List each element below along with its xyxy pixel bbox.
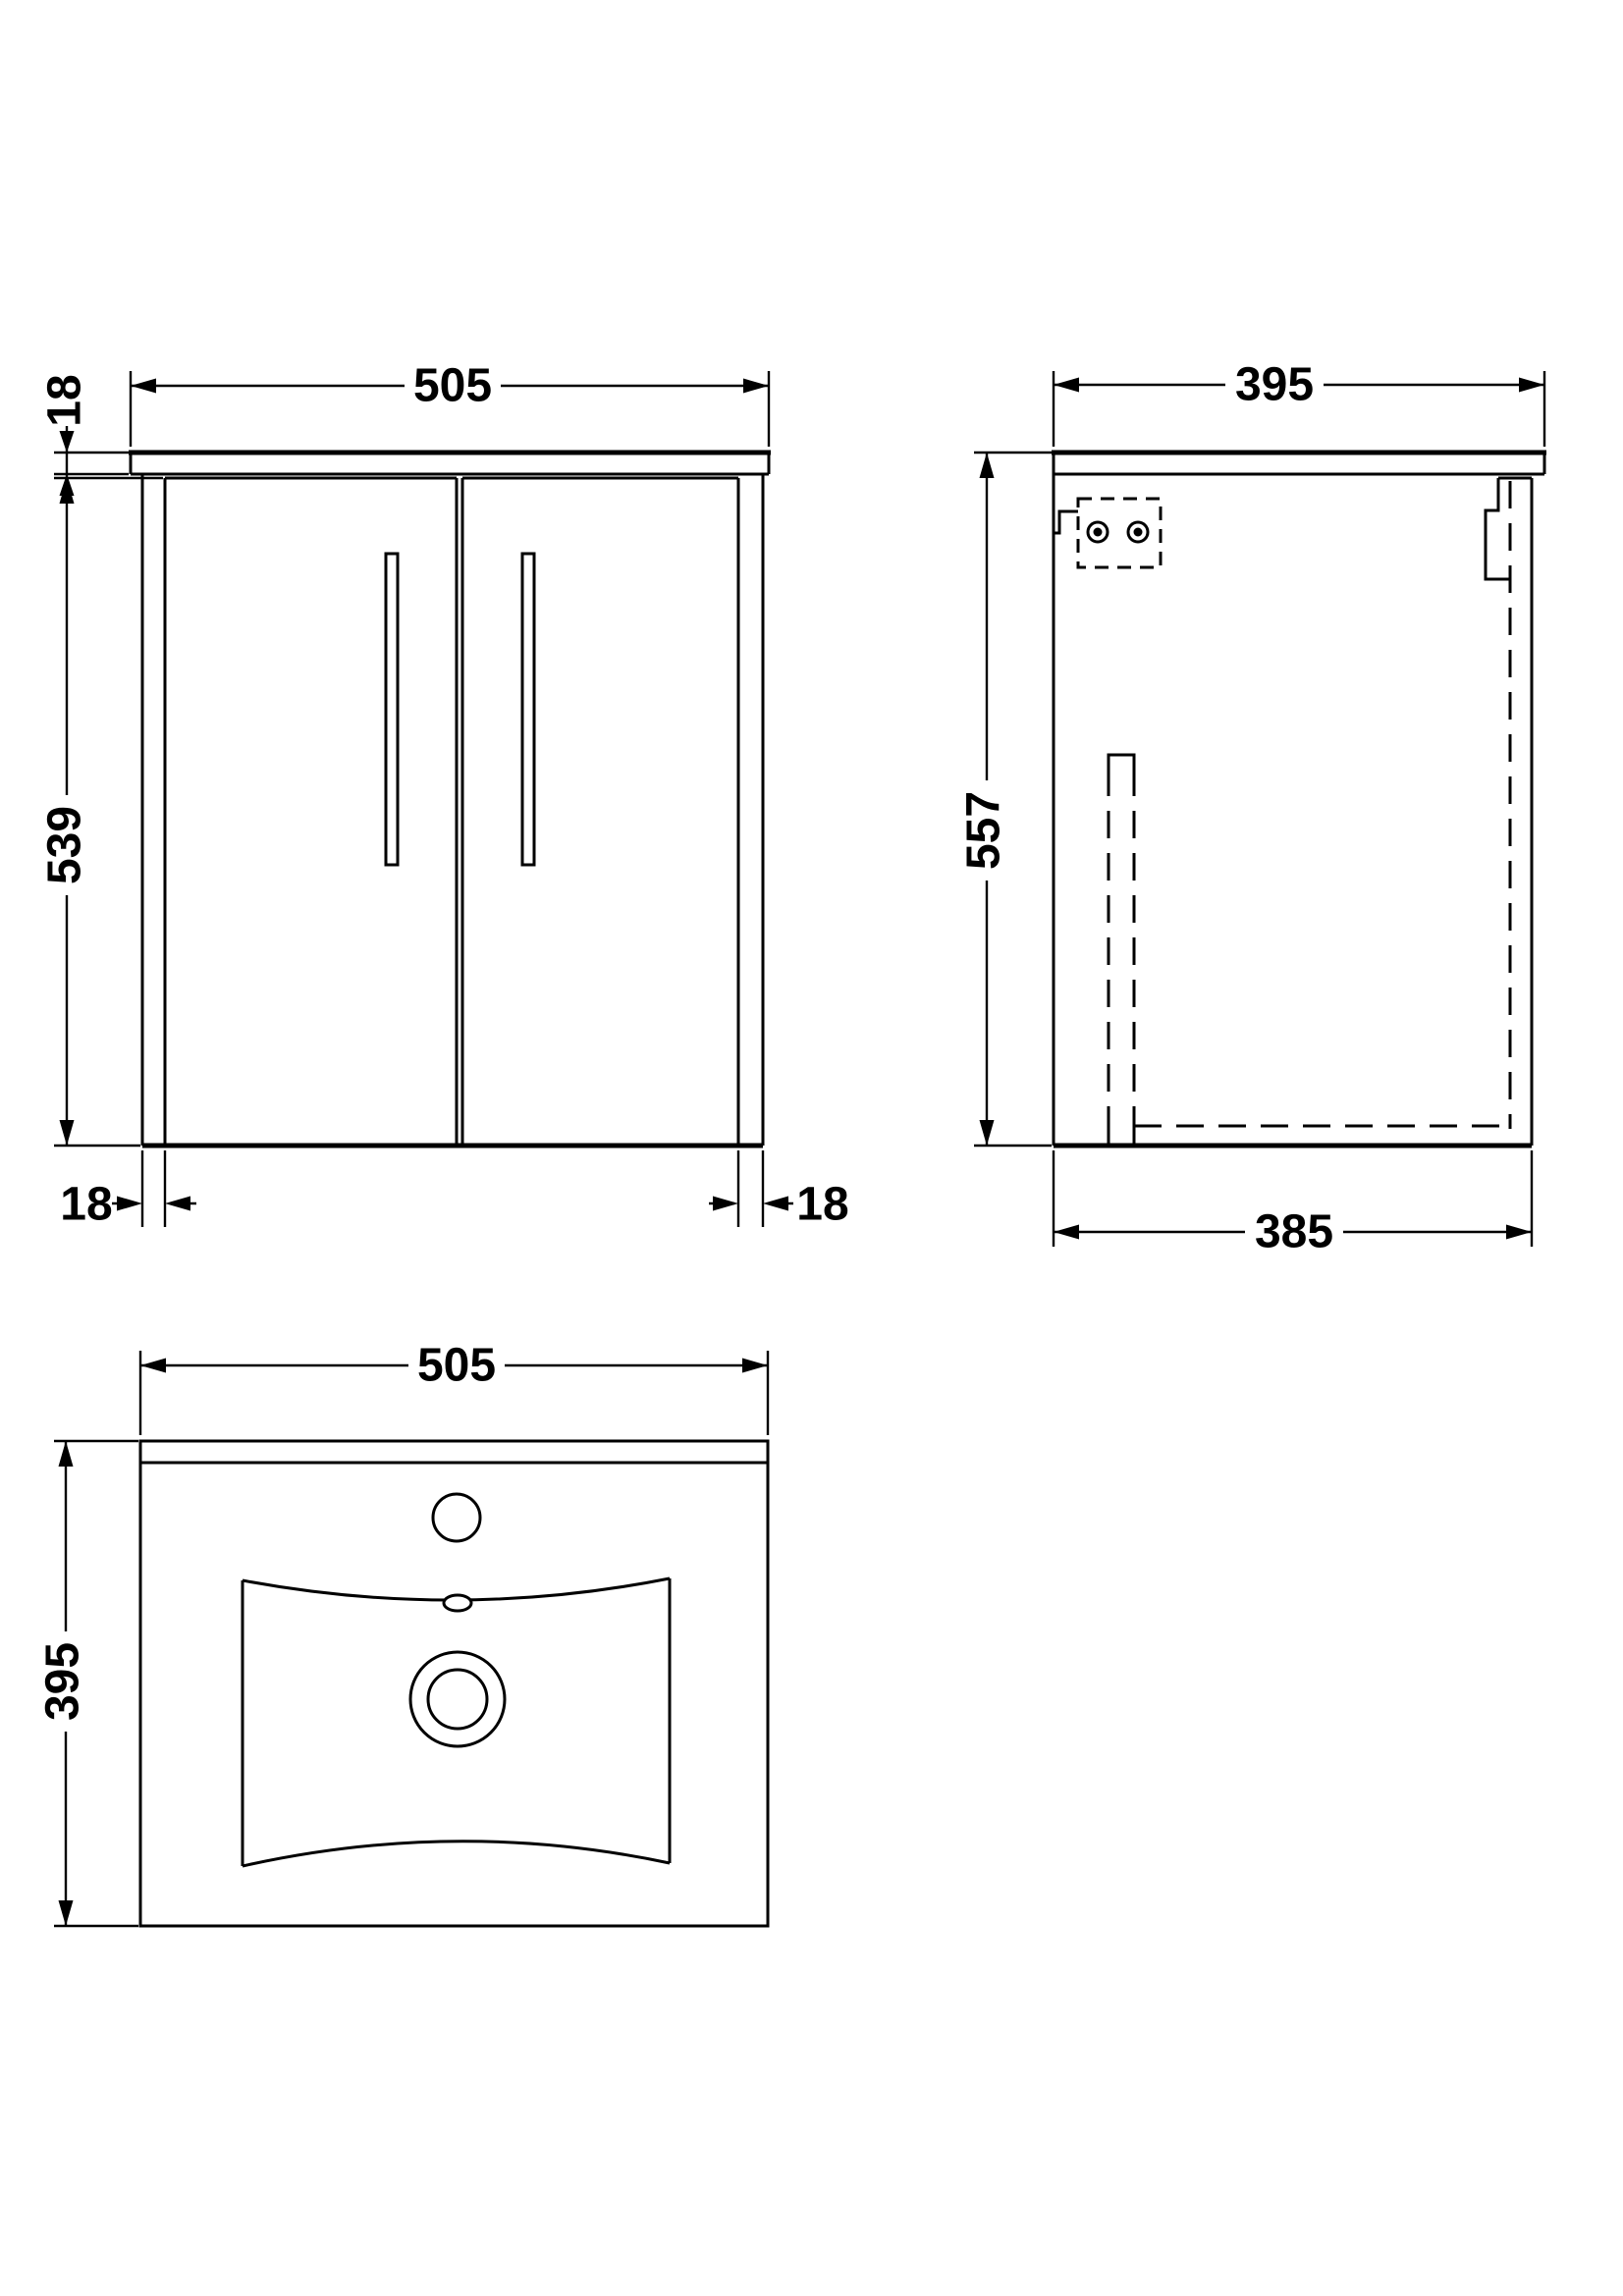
- technical-drawing-canvas: 505 18 539: [0, 0, 1623, 2296]
- plan-basin-bowl: [243, 1578, 670, 1866]
- dim-label-front-width: 505: [413, 360, 492, 412]
- front-elevation-view: 505 18 539: [39, 360, 849, 1231]
- side-worktop: [1052, 453, 1546, 474]
- dim-label-plan-width: 505: [417, 1340, 496, 1392]
- front-worktop: [129, 453, 771, 474]
- dim-plan-width-505: 505: [140, 1340, 768, 1436]
- plan-view: 505 395: [37, 1340, 769, 1927]
- plan-tap-hole: [433, 1494, 480, 1541]
- side-wall-bracket: [1054, 499, 1161, 567]
- dim-front-left-18: 18: [60, 1150, 196, 1231]
- plan-waste: [410, 1652, 505, 1746]
- dim-side-depth-395: 395: [1054, 359, 1544, 448]
- dim-label-side-height: 557: [958, 791, 1010, 870]
- side-hinge-plate: [1486, 478, 1510, 579]
- side-elevation-view: 395 557 385: [958, 359, 1547, 1258]
- front-right-door: [462, 478, 738, 1146]
- dim-label-front-right-panel: 18: [796, 1179, 848, 1231]
- dim-label-side-carcass: 385: [1255, 1206, 1333, 1258]
- dim-side-carcass-385: 385: [1054, 1150, 1532, 1258]
- drawing-sheet: 505 18 539: [0, 0, 1623, 2296]
- front-carcass: [142, 475, 763, 1146]
- dim-front-width-505: 505: [131, 360, 769, 448]
- side-carcass: [1054, 474, 1532, 1146]
- dim-front-door-height-539: 539: [39, 478, 164, 1146]
- dim-side-height-557: 557: [958, 453, 1053, 1146]
- dim-label-front-worktop: 18: [39, 374, 91, 426]
- front-door-handle-right: [522, 554, 534, 865]
- plan-overflow: [444, 1595, 471, 1611]
- dim-plan-depth-395: 395: [37, 1441, 139, 1926]
- dim-label-side-depth: 395: [1235, 359, 1314, 411]
- dim-label-front-left-panel: 18: [60, 1179, 112, 1231]
- dim-front-right-18: 18: [709, 1150, 849, 1231]
- dim-label-plan-depth: 395: [37, 1642, 89, 1721]
- side-bracket-hook: [1054, 511, 1078, 533]
- side-back-groove: [1109, 755, 1134, 1146]
- front-left-door: [165, 478, 457, 1146]
- front-door-handle-left: [386, 554, 398, 865]
- dim-label-front-door-height: 539: [39, 806, 91, 884]
- plan-worktop: [140, 1441, 768, 1926]
